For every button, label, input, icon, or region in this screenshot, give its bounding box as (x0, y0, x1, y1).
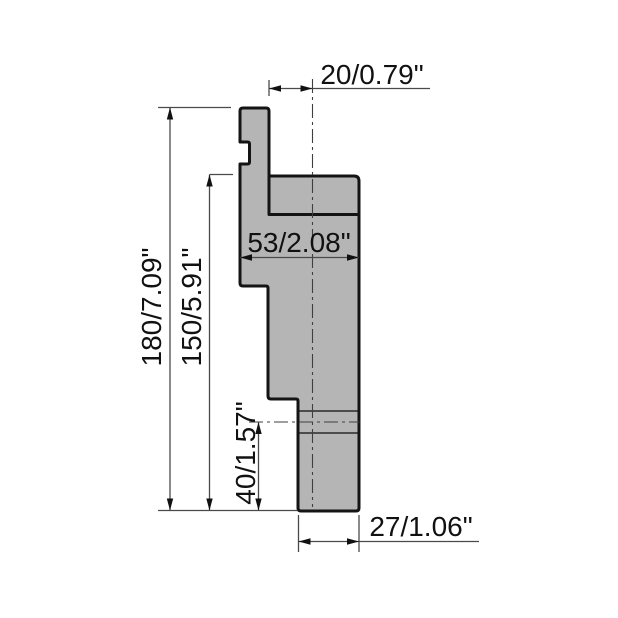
arrowhead-top (206, 175, 212, 187)
dimension-label-bottom-width: 27/1.06" (369, 511, 472, 542)
dimension-label-flange-width: 53/2.08" (247, 227, 350, 258)
dimension-upper-height: 150/5.91" (176, 175, 233, 511)
dimension-label-top-width: 20/0.79" (320, 59, 423, 90)
dimension-label-upper-height: 150/5.91" (176, 248, 207, 367)
arrowhead-bottom (167, 499, 173, 511)
arrowhead-top (167, 108, 173, 120)
technical-drawing-canvas: 20/0.79" 53/2.08" 180/7.09" 150/5.91" (0, 0, 618, 618)
arrowhead-left (269, 85, 281, 91)
dimension-lower-height: 40/1.57" (230, 401, 262, 510)
dimension-flange-width: 53/2.08" (240, 227, 359, 261)
arrowhead-left (299, 538, 311, 544)
technical-drawing: 20/0.79" 53/2.08" 180/7.09" 150/5.91" (0, 0, 618, 618)
dimension-label-total-height: 180/7.09" (136, 248, 167, 367)
dimension-top-width: 20/0.79" (269, 59, 430, 96)
arrowhead-right (347, 538, 359, 544)
arrowhead-right (301, 85, 313, 91)
dimension-label-lower-height: 40/1.57" (230, 401, 261, 504)
dimension-bottom-width: 27/1.06" (299, 511, 480, 552)
arrowhead-bottom (206, 499, 212, 511)
